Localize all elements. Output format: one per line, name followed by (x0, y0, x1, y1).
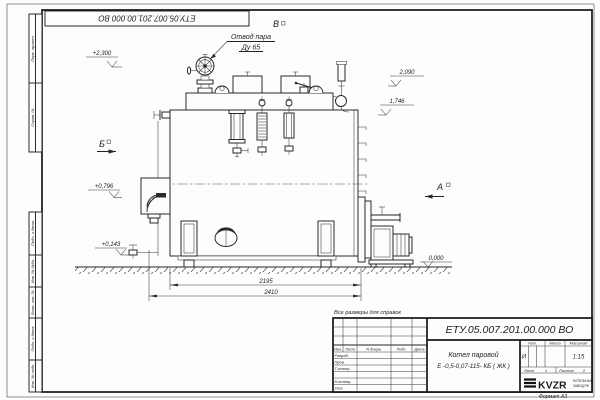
lifting-lug-left (215, 86, 229, 93)
header-lit: Лит. (527, 342, 537, 346)
elevation-0796: +0,796 (88, 184, 122, 198)
product-name-line1: Котел паровой (448, 351, 498, 359)
dimension-2410-value: 2410 (263, 290, 278, 296)
header-massa: Масса (549, 342, 560, 346)
boiler-drawing-canvas: ЕТУ.05.007.201.00.000 ВО Перв. примен. С… (0, 0, 600, 400)
view-marker-v: В (273, 19, 285, 29)
view-marker-b-label: Б (99, 139, 105, 149)
margin-podp-data-2: Подп. и дата (30, 326, 35, 352)
margin-inv-podl: Инв. № подл. (30, 364, 35, 389)
rear-flange-stack (358, 197, 371, 262)
elevation-0000-value: 0,000 (428, 256, 444, 262)
margin-inv-dubl: Инв. № дубл. (30, 259, 35, 284)
header-date: Дата (413, 348, 424, 352)
sig-nkontr: Н.контр. (335, 379, 352, 384)
elevation-2090: 2,090 (388, 70, 424, 86)
elevation-2300: +2,300 (86, 51, 122, 67)
top-left-stamp: ЕТУ.05.007.201.00.000 ВО (45, 11, 249, 26)
header-podp: Подп. (396, 348, 406, 352)
view-marker-v-label: В (273, 19, 279, 29)
product-name-line2: Е -0,5-0,07-115- КБ ( ЖК ) (437, 363, 510, 370)
drum-box-left (233, 72, 262, 93)
sheet-list-label: Лист (523, 368, 535, 373)
stamp-doc-number: ЕТУ.05.007.201.00.000 ВО (98, 14, 195, 23)
view-marker-b: Б (97, 139, 116, 154)
reference-note: Все размеры для справок (334, 310, 401, 316)
steam-outlet-valve (187, 55, 214, 94)
ground-line (75, 267, 452, 274)
left-top-fitting (154, 110, 170, 120)
elevation-0000: 0,000 (420, 256, 452, 267)
economizer-box (141, 178, 170, 223)
logo-sub1: КОТЕЛЬНЫЙ (573, 379, 594, 383)
elevation-0796-value: +0,796 (95, 184, 114, 190)
header-masshtab: Масштаб (570, 342, 589, 346)
margin-podp-data-1: Подп. и дата (30, 220, 35, 246)
elevation-2300-value: +2,300 (93, 51, 112, 57)
steam-drum (186, 93, 349, 112)
sig-tkontr: Т.контр. (335, 366, 351, 371)
scale-value: 1:15 (573, 355, 585, 361)
left-margin-columns: Перв. примен. Справ. № Подп. и дата Инв.… (29, 14, 42, 392)
drawing-sheet: ЕТУ.05.007.201.00.000 ВО Перв. примен. С… (0, 0, 600, 400)
callout-line1: Отвод пара (231, 33, 271, 41)
burner-gas-pipe (371, 207, 400, 222)
sheet-list-value: 1 (545, 368, 547, 373)
sheet-listov-label: Листов (558, 368, 574, 373)
format-label: Формат А3 (539, 394, 567, 400)
header-izm: Изм. (334, 348, 342, 352)
view-marker-a-label: А (436, 182, 443, 192)
header-ndoc: N докум. (366, 348, 381, 352)
drum-sight-glass (337, 62, 347, 96)
logo-sub2: ЗАВОД РФ (573, 384, 590, 388)
elevation-1746: 1,746 (378, 99, 414, 115)
drain-valve (129, 245, 158, 259)
titleblock-doc-number: ЕТУ.05.007.201.00.000 ВО (446, 324, 574, 336)
margin-vzam-inv: Взам. инв. № (30, 289, 35, 314)
logo-text: KVZR (538, 380, 567, 392)
sig-utv: Утв. (335, 386, 344, 391)
elevation-0143: +0,143 (95, 242, 129, 255)
elevation-2090-value: 2,090 (398, 70, 415, 76)
elevation-0143-value: +0,143 (102, 242, 121, 248)
dimension-2195-value: 2195 (258, 279, 273, 285)
margin-perv-primen: Перв. примен. (30, 35, 35, 62)
callout-line2: Ду 65 (241, 45, 260, 52)
sig-prov: Пров. (335, 360, 346, 365)
elevation-1746-value: 1,746 (389, 99, 405, 105)
sig-razrab: Разраб. (335, 353, 349, 358)
steam-outlet-callout: Отвод пара Ду 65 (210, 33, 275, 59)
view-marker-a: А (425, 182, 450, 199)
lit-value: И (522, 355, 527, 361)
title-block: Изм. Лист N докум. Подп. Дата Разраб. Пр… (333, 318, 594, 392)
header-list: Лист (344, 348, 355, 352)
margin-sprav-no: Справ. № (30, 108, 35, 127)
fan-unit (369, 226, 413, 267)
